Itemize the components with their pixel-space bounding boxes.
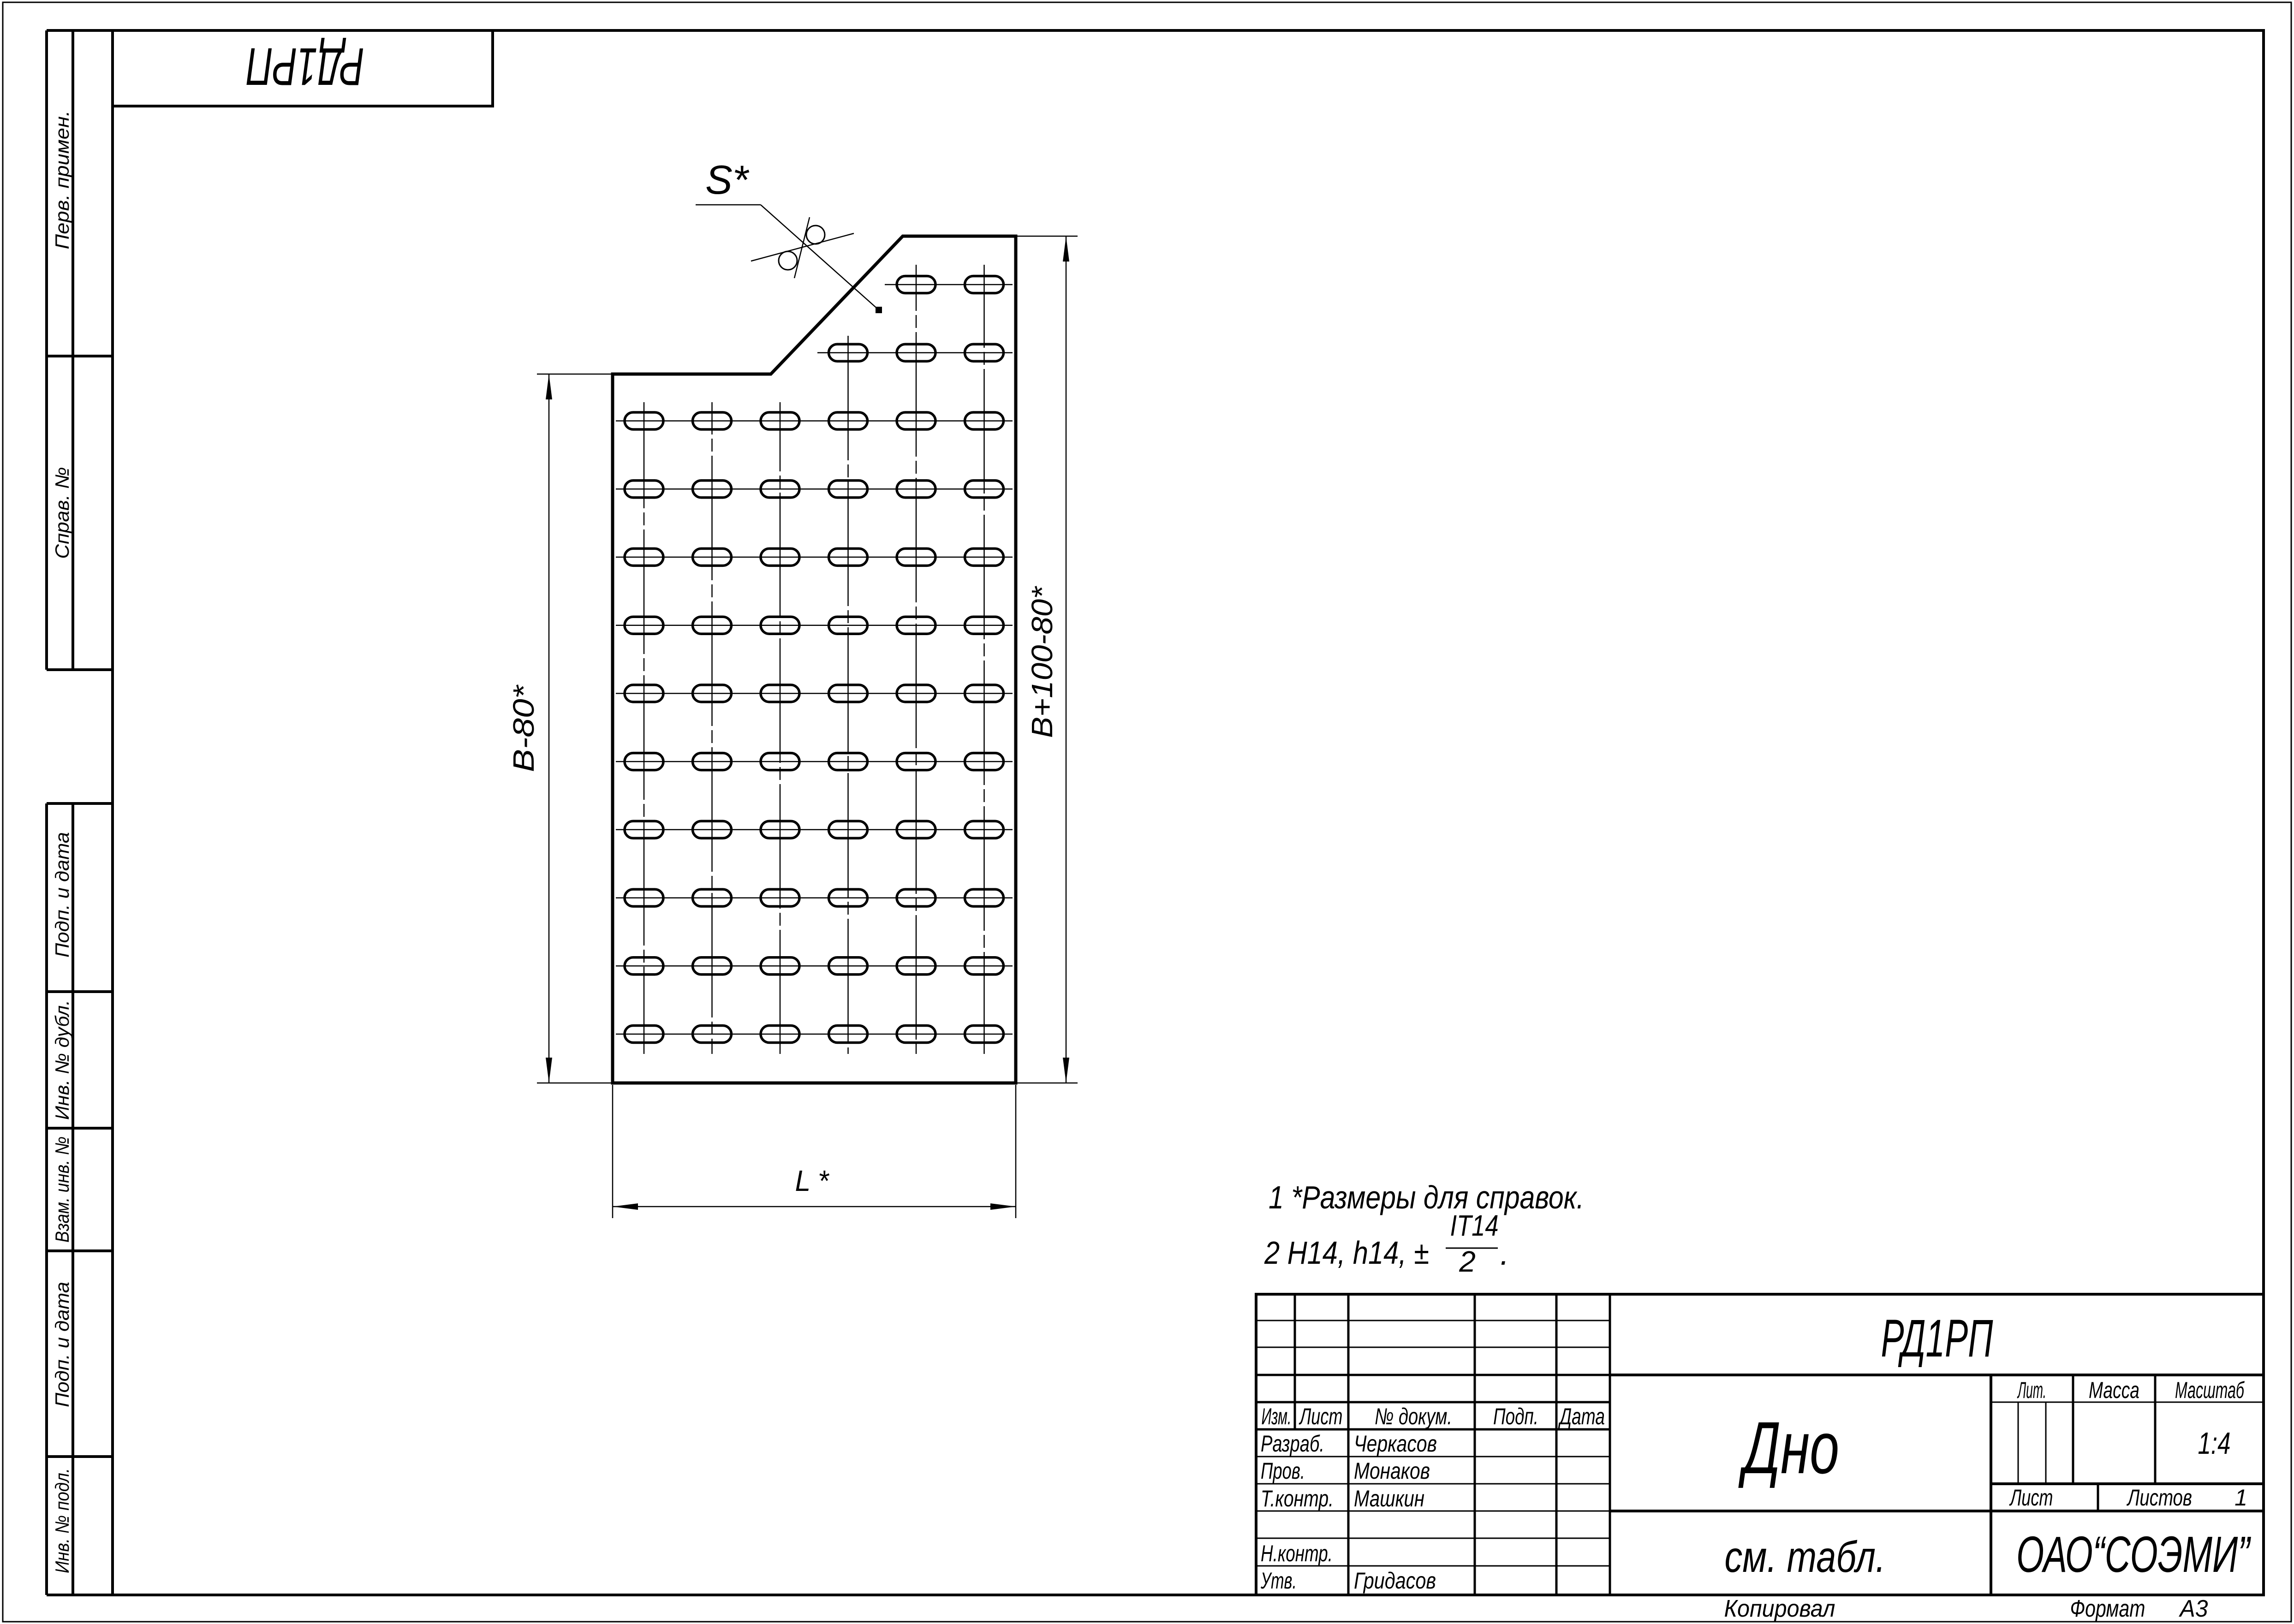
svg-text:Перв. примен.: Перв. примен. (51, 111, 73, 250)
svg-text:Масштаб: Масштаб (2175, 1377, 2245, 1403)
svg-text:Дата: Дата (1558, 1404, 1605, 1429)
svg-text:Инв. № дубл.: Инв. № дубл. (51, 1000, 73, 1120)
svg-text:Н.контр.: Н.контр. (1261, 1541, 1333, 1566)
svg-text:Гридасов: Гридасов (1354, 1568, 1436, 1594)
svg-text:2 Н14, h14, ±: 2 Н14, h14, ± (1264, 1235, 1429, 1271)
svg-text:1: 1 (2234, 1485, 2247, 1511)
svg-text:Монаков: Монаков (1354, 1458, 1430, 1484)
svg-text:IT14: IT14 (1450, 1209, 1499, 1242)
svg-text:B+100-80*: B+100-80* (1025, 586, 1059, 738)
svg-text:Лит.: Лит. (2017, 1377, 2046, 1403)
svg-text:S*: S* (705, 157, 750, 202)
svg-text:2: 2 (1459, 1245, 1476, 1278)
svg-text:Разраб.: Разраб. (1261, 1431, 1324, 1457)
svg-text:Инв. № подл.: Инв. № подл. (51, 1468, 73, 1573)
svg-text:Подп. и дата: Подп. и дата (51, 832, 73, 958)
svg-text:Формат: Формат (2070, 1595, 2145, 1622)
svg-text:Лист: Лист (2009, 1485, 2053, 1511)
svg-text:см. табл.: см. табл. (1725, 1533, 1886, 1582)
svg-text:Масса: Масса (2089, 1377, 2139, 1403)
svg-text:ОАО“СОЭМИ”: ОАО“СОЭМИ” (2016, 1526, 2251, 1583)
svg-text:Справ. №: Справ. № (51, 467, 73, 559)
svg-text:1:4: 1:4 (2198, 1426, 2231, 1461)
svg-text:Взам. инв. №: Взам. инв. № (51, 1136, 73, 1243)
svg-text:Изм.: Изм. (1262, 1404, 1292, 1429)
svg-text:Копировал: Копировал (1724, 1595, 1835, 1622)
svg-text:Пров.: Пров. (1261, 1458, 1305, 1484)
svg-text:Т.контр.: Т.контр. (1261, 1486, 1334, 1511)
svg-text:А3: А3 (2179, 1595, 2208, 1622)
svg-text:РД1РП: РД1РП (246, 37, 364, 96)
svg-text:Черкасов: Черкасов (1354, 1431, 1437, 1457)
svg-text:L *: L * (795, 1164, 830, 1197)
svg-text:Листов: Листов (2127, 1485, 2192, 1511)
svg-text:Лист: Лист (1299, 1404, 1342, 1429)
svg-text:B-80*: B-80* (507, 684, 540, 772)
svg-text:Подп. и дата: Подп. и дата (51, 1282, 73, 1407)
svg-text:Подп.: Подп. (1493, 1404, 1538, 1429)
svg-text:Утв.: Утв. (1260, 1568, 1297, 1594)
svg-text:№ докум.: № докум. (1375, 1404, 1452, 1429)
svg-text:Машкин: Машкин (1354, 1486, 1424, 1511)
svg-text:РД1РП: РД1РП (1881, 1309, 1993, 1368)
svg-text:Дно: Дно (1738, 1406, 1839, 1489)
svg-text:.: . (1500, 1236, 1509, 1272)
svg-text:1 *Размеры для справок.: 1 *Размеры для справок. (1269, 1179, 1584, 1215)
